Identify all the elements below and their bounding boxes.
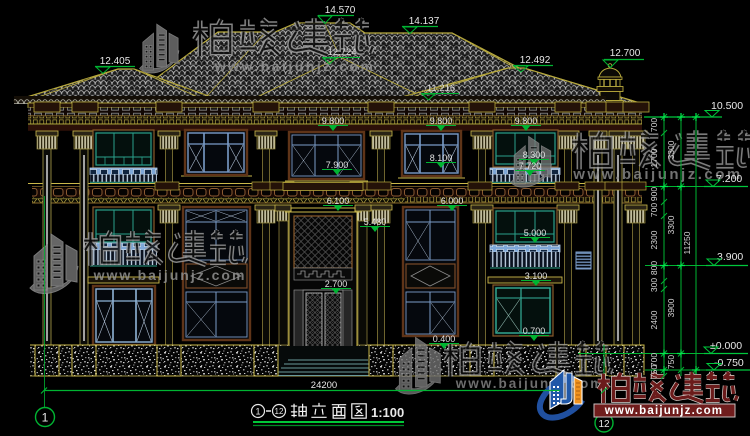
svg-text:6.000: 6.000 <box>441 196 464 206</box>
svg-text:11250: 11250 <box>682 231 692 254</box>
svg-text:12.700: 12.700 <box>610 48 641 59</box>
svg-text:700: 700 <box>649 203 659 217</box>
svg-text:2300: 2300 <box>649 230 659 249</box>
svg-text:9.800: 9.800 <box>322 116 345 126</box>
svg-text:7.900: 7.900 <box>326 160 349 170</box>
svg-text:9.800: 9.800 <box>430 116 453 126</box>
svg-text:750: 750 <box>666 355 676 369</box>
svg-text:5.000: 5.000 <box>524 228 547 238</box>
svg-text:1:100: 1:100 <box>371 405 404 420</box>
svg-text:12.724: 12.724 <box>327 47 356 58</box>
svg-text:900: 900 <box>649 187 659 201</box>
svg-text:7.200: 7.200 <box>716 173 742 185</box>
svg-text:1: 1 <box>42 411 49 425</box>
svg-text:3300: 3300 <box>666 215 676 234</box>
svg-text:24200: 24200 <box>311 380 337 391</box>
svg-text:www.baijunjz.com: www.baijunjz.com <box>604 405 723 417</box>
svg-text:11.216: 11.216 <box>427 83 455 94</box>
svg-text:6.100: 6.100 <box>327 196 350 206</box>
svg-text:12: 12 <box>275 407 284 416</box>
svg-text:9.800: 9.800 <box>515 116 538 126</box>
svg-text:750: 750 <box>649 365 659 379</box>
svg-text:3.900: 3.900 <box>717 251 743 263</box>
svg-text:www.baijunjz.com: www.baijunjz.com <box>93 267 247 283</box>
svg-text:7.720: 7.720 <box>519 161 542 171</box>
svg-text:0.400: 0.400 <box>433 334 456 344</box>
svg-text:12.405: 12.405 <box>100 56 131 67</box>
svg-text:www.baijunjz.com: www.baijunjz.com <box>214 58 376 74</box>
svg-text:3.100: 3.100 <box>525 271 548 281</box>
svg-text:800: 800 <box>649 261 659 275</box>
svg-text:12.492: 12.492 <box>520 55 551 66</box>
svg-text:12: 12 <box>598 419 610 430</box>
svg-text:0.700: 0.700 <box>523 326 546 336</box>
svg-text:2400: 2400 <box>649 310 659 329</box>
svg-text:300: 300 <box>649 278 659 292</box>
svg-text:5.480: 5.480 <box>364 217 387 227</box>
svg-text:14.570: 14.570 <box>325 5 356 16</box>
svg-text:1: 1 <box>255 407 260 417</box>
svg-text:700: 700 <box>649 118 659 132</box>
svg-text:8.300: 8.300 <box>523 150 546 160</box>
svg-text:3900: 3900 <box>666 298 676 317</box>
svg-text:1700: 1700 <box>649 148 659 167</box>
svg-text:3300: 3300 <box>666 140 676 159</box>
svg-text:8.100: 8.100 <box>430 153 453 163</box>
svg-text:2.700: 2.700 <box>325 279 348 289</box>
svg-text:14.137: 14.137 <box>409 16 440 27</box>
